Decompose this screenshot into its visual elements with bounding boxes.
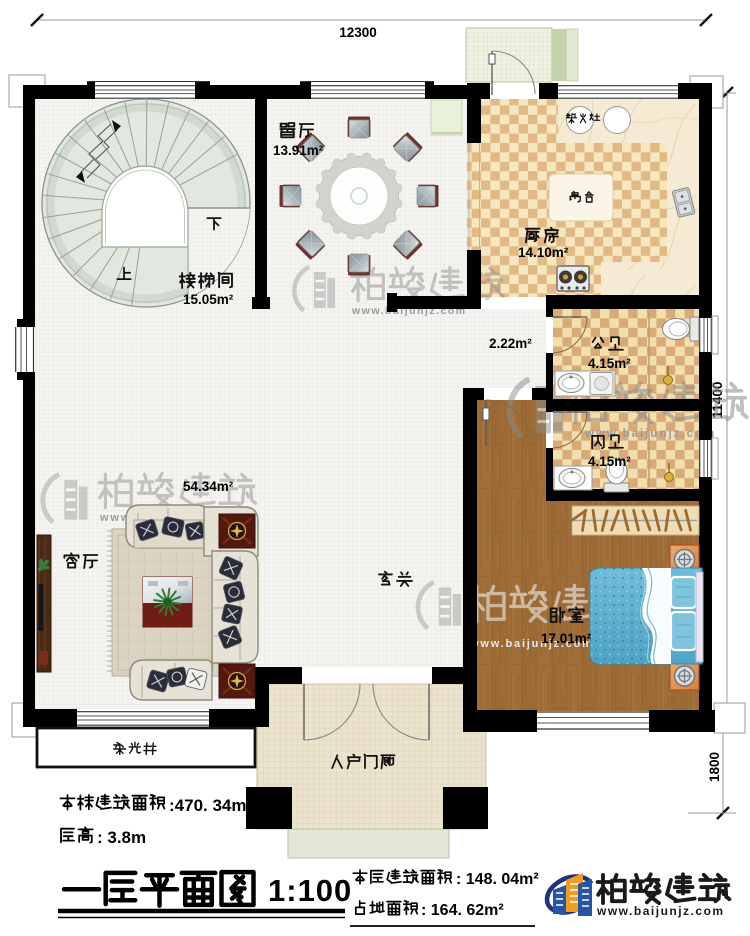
svg-text:13.91m²: 13.91m² bbox=[273, 143, 324, 158]
svg-text::470. 34m²: :470. 34m² bbox=[169, 796, 252, 815]
svg-text:17.01m²: 17.01m² bbox=[541, 631, 592, 646]
svg-text:12300: 12300 bbox=[339, 25, 377, 40]
svg-text:4.15m²: 4.15m² bbox=[588, 356, 631, 371]
svg-text:www.baijunjz.com: www.baijunjz.com bbox=[596, 904, 725, 918]
svg-text:15.05m²: 15.05m² bbox=[183, 292, 234, 307]
svg-text:1:100: 1:100 bbox=[268, 873, 352, 908]
svg-text:1800: 1800 bbox=[707, 752, 722, 782]
svg-text:: 3.8m: : 3.8m bbox=[97, 828, 146, 847]
svg-text:2.22m²: 2.22m² bbox=[489, 336, 532, 351]
svg-text:14.10m²: 14.10m² bbox=[518, 245, 569, 260]
svg-text:54.34m²: 54.34m² bbox=[183, 479, 234, 494]
svg-text:: 164. 62m²: : 164. 62m² bbox=[421, 902, 504, 919]
svg-text:: 148. 04m²: : 148. 04m² bbox=[456, 871, 539, 888]
svg-text:4.15m²: 4.15m² bbox=[588, 454, 631, 469]
